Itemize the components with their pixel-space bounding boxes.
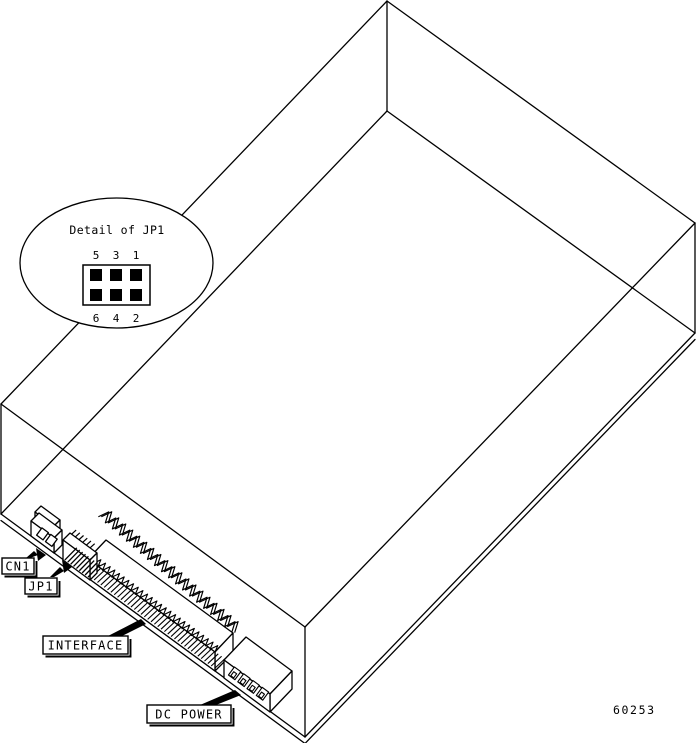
dc-power-leader-tail [200, 690, 241, 705]
jp1-leader-tail [50, 567, 64, 577]
figure-number: 60253 [613, 703, 656, 717]
cn1-leader-tail [26, 551, 38, 558]
jumper-pin [90, 289, 102, 301]
jumper-pin [110, 289, 122, 301]
pin-number-3: 3 [113, 249, 120, 262]
svg-text:INTERFACE: INTERFACE [48, 639, 124, 653]
jp1-jumper [63, 529, 100, 580]
jumper-pin [130, 269, 142, 281]
interface-leader-tail [108, 619, 146, 636]
pin-number-5: 5 [93, 249, 100, 262]
callout-ellipse [20, 198, 213, 328]
svg-text:CN1: CN1 [5, 560, 30, 574]
pin-number-4: 4 [113, 312, 120, 325]
chassis-wireframe [1, 1, 695, 737]
label-interface: INTERFACE [43, 619, 146, 657]
dc-power-connector [224, 637, 292, 712]
jumper-pin [110, 269, 122, 281]
label-cn1: CN1 [2, 548, 46, 577]
jumper-pin [90, 269, 102, 281]
pin-number-6: 6 [93, 312, 100, 325]
label-dc-power: DC POWER [147, 690, 241, 726]
technical-diagram: Detail of JP1 5 3 1 6 4 2 CN1 JP1 INTERF… [0, 0, 697, 743]
jp1-detail-callout: Detail of JP1 5 3 1 6 4 2 [20, 198, 213, 328]
svg-text:DC POWER: DC POWER [155, 708, 222, 722]
pin-number-2: 2 [133, 312, 140, 325]
svg-text:JP1: JP1 [28, 580, 53, 594]
pin-number-1: 1 [133, 249, 140, 262]
jumper-pin [130, 289, 142, 301]
callout-title: Detail of JP1 [69, 223, 164, 237]
